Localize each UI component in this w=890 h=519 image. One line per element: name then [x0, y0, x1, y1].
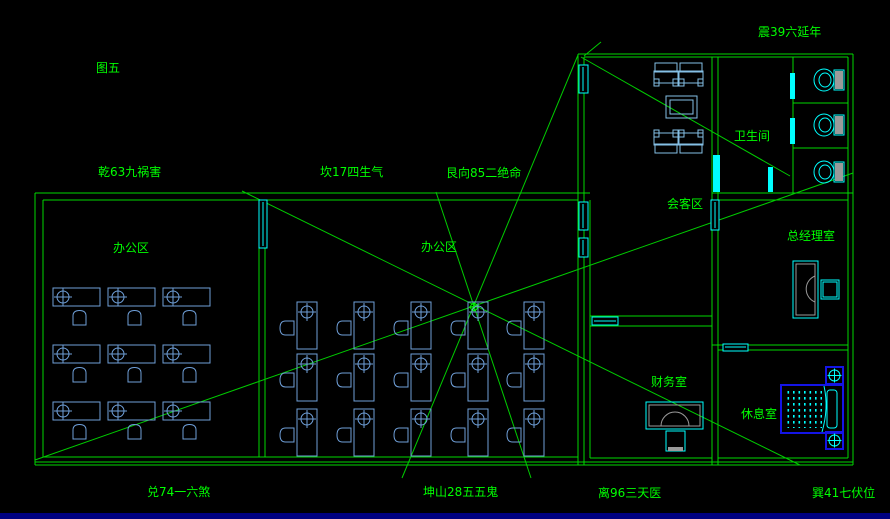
compass-kun-label: 坤山28五五鬼: [423, 484, 498, 499]
meeting-furniture: [654, 63, 703, 153]
compass-li-label: 离96三天医: [598, 485, 661, 500]
gm-chair: [821, 280, 839, 299]
left-office-desks: [53, 288, 210, 439]
room-label-office-left: 办公区: [113, 240, 149, 255]
walls: [35, 54, 853, 465]
stall-door-3: [768, 167, 773, 192]
labels: 图五 乾63九祸害 坎17四生气 艮向85二绝命 震39六延年 兑74一六煞 坤…: [96, 25, 875, 500]
figure-caption: 图五: [96, 61, 120, 75]
middle-office-desks: [280, 302, 544, 456]
room-label-finance: 财务室: [651, 374, 687, 389]
floor-plan: 图五 乾63九祸害 坎17四生气 艮向85二绝命 震39六延年 兑74一六煞 坤…: [0, 0, 890, 519]
lamp-bottom: [826, 432, 843, 449]
compass-kan-label: 坎17四生气: [320, 164, 383, 179]
compass-gen-label: 艮向85二绝命: [446, 165, 521, 180]
room-label-meeting: 会客区: [667, 196, 703, 211]
stall-door-1: [790, 73, 795, 99]
openings: [259, 65, 795, 351]
gm-desk: [793, 261, 818, 318]
compass-xun-label: 巽41七伏位: [812, 485, 875, 500]
cad-canvas: 图五 乾63九祸害 坎17四生气 艮向85二绝命 震39六延年 兑74一六煞 坤…: [0, 0, 890, 519]
pillow: [827, 390, 837, 428]
compass-qian-label: 乾63九祸害: [98, 164, 161, 179]
room-label-gm-office: 总经理室: [787, 228, 835, 243]
stall-door-2: [790, 118, 795, 144]
fengshui-lines: [35, 42, 853, 478]
finance-desk: [646, 402, 703, 429]
finance-furniture: [646, 402, 703, 451]
lamp-top: [826, 367, 843, 384]
room-label-office-middle: 办公区: [421, 239, 457, 254]
room-label-lounge: 休息室: [741, 406, 777, 421]
door-restroom: [713, 155, 720, 192]
compass-dui-label: 兑74一六煞: [147, 485, 210, 499]
room-label-restroom: 卫生间: [734, 129, 770, 143]
gm-office-furniture: [793, 261, 839, 318]
status-strip: [0, 513, 890, 519]
lounge-furniture: [781, 367, 843, 449]
toilets: [814, 69, 844, 183]
compass-zhen-label: 震39六延年: [758, 25, 821, 39]
